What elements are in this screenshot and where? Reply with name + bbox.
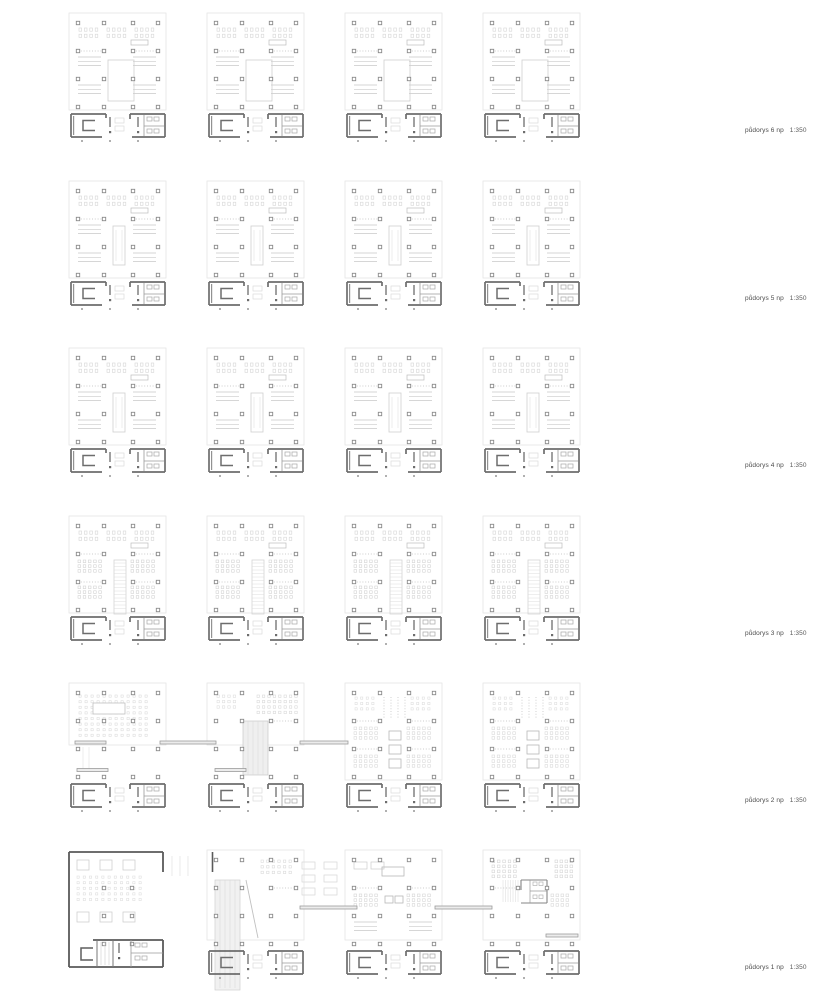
floor-label-scale: 1:350 <box>790 797 807 805</box>
floor-plan-3np-3 <box>345 516 442 645</box>
floor-plan-5np-3 <box>345 181 442 310</box>
floor-plan-3np-1 <box>69 516 166 645</box>
floor-plan-1np-4 <box>483 850 580 979</box>
floor-label-scale: 1:350 <box>790 462 807 470</box>
floor-plan-5np-4 <box>483 181 580 310</box>
floor-plan-2np-3 <box>345 683 442 812</box>
floor-label-scale: 1:350 <box>790 127 807 135</box>
floor-label-scale: 1:350 <box>790 295 807 303</box>
floor-label-text: půdorys 3 np <box>745 630 784 638</box>
floor-plan-1np-1 <box>69 852 163 967</box>
drawing-sheet: { "sheet": { "type": "architectural-floo… <box>0 0 814 1000</box>
floor-label-text: půdorys 2 np <box>745 797 784 805</box>
floor-plan-1np-2 <box>207 850 304 990</box>
floor-plan-6np-2 <box>207 13 304 142</box>
floor-plan-6np-3 <box>345 13 442 142</box>
floor-plan-4np-1 <box>69 348 166 477</box>
floor-plan-3np-4 <box>483 516 580 645</box>
floor-plan-1np-3 <box>345 850 442 979</box>
floor-label-2np: půdorys 2 np 1:350 <box>745 797 807 805</box>
floor-label-4np: půdorys 4 np 1:350 <box>745 462 807 470</box>
floor-label-text: půdorys 6 np <box>745 127 784 135</box>
floor-label-6np: půdorys 6 np 1:350 <box>745 127 807 135</box>
floor-plan-4np-3 <box>345 348 442 477</box>
floor-label-text: půdorys 5 np <box>745 295 784 303</box>
floor-plan-5np-2 <box>207 181 304 310</box>
floor-plan-3np-2 <box>207 516 304 645</box>
floor-label-5np: půdorys 5 np 1:350 <box>745 295 807 303</box>
floor-plan-5np-1 <box>69 181 166 310</box>
floor-plan-4np-4 <box>483 348 580 477</box>
floor-plan-2np-4 <box>483 683 580 812</box>
plan-sheet-svg <box>0 0 814 1000</box>
floor-plan-4np-2 <box>207 348 304 477</box>
floor-label-3np: půdorys 3 np 1:350 <box>745 630 807 638</box>
floor-plan-2np-1 <box>69 683 166 812</box>
floor-label-scale: 1:350 <box>790 630 807 638</box>
floor-plan-6np-4 <box>483 13 580 142</box>
floor-plan-6np-1 <box>69 13 166 142</box>
floor-label-1np: půdorys 1 np 1:350 <box>745 964 807 972</box>
floor-label-text: půdorys 1 np <box>745 964 784 972</box>
floor-label-text: půdorys 4 np <box>745 462 784 470</box>
floor-plan-2np-2 <box>207 683 304 812</box>
floor-label-scale: 1:350 <box>790 964 807 972</box>
